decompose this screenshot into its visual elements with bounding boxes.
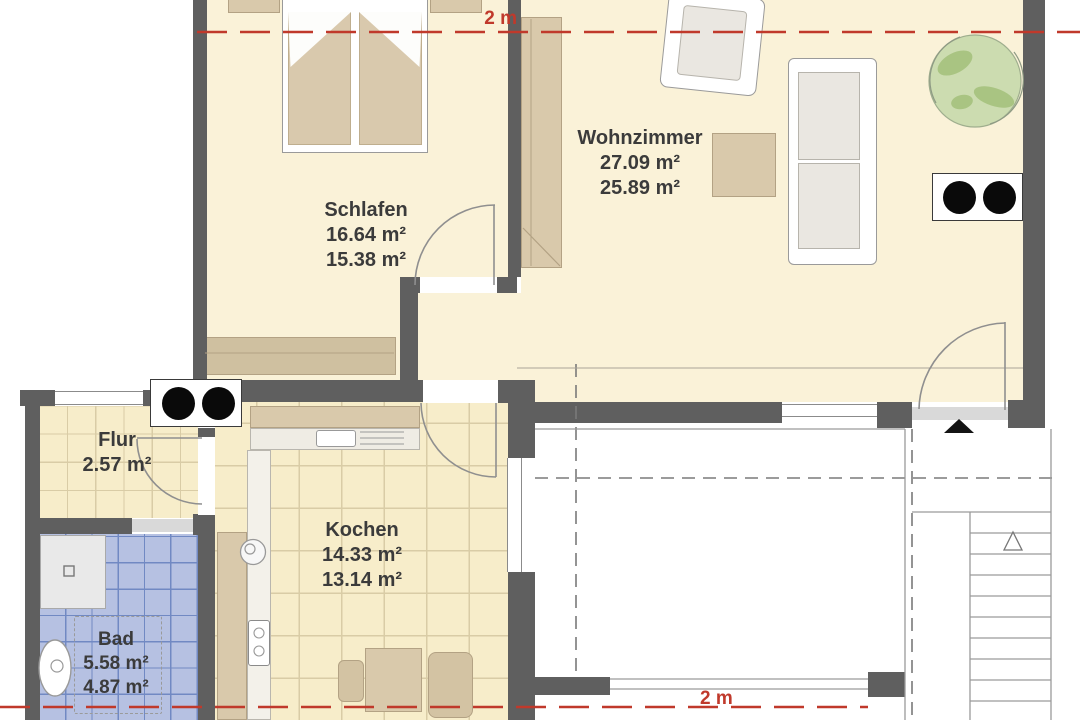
staircase [912,512,1051,720]
dining-chair-left [338,660,364,702]
stairs-up-arrow-icon [1004,532,1022,550]
burner-panel-flur [150,379,242,427]
room-name: Bad [70,628,162,652]
wall-living-right [1023,0,1045,404]
shower [40,535,106,609]
living-window [782,404,877,417]
wall-bad-kitchen [198,515,215,720]
room-area: 5.58 m² [70,652,162,676]
armchair-cushion [677,5,748,81]
wall-kitchen-balcony-lower [508,572,535,720]
schlafen-label: Schlafen 16.64 m² 15.38 m² [286,198,446,273]
wall-kitchen-door-block [498,380,535,403]
burner-panel-living [932,173,1023,221]
wall-nook-top-left [400,277,420,293]
room-name: Schlafen [286,198,446,223]
wall-bedroom-bottom [242,380,423,402]
dimension-label-top: 2 m [420,9,517,29]
room-name: Kochen [282,518,442,543]
room-name: Wohnzimmer [560,126,720,151]
kitchen-door-opening [423,380,498,403]
floor-plan: Schlafen 16.64 m² 15.38 m² Wohnzimmer 27… [0,0,1080,720]
sofa-cushion-bottom [798,163,860,249]
dresser [203,337,396,375]
kitchen-balcony-window [507,458,522,572]
bad-door-leaf [132,519,193,532]
burner-dot-icon [943,181,976,214]
flur-window [55,391,143,405]
sofa-cushion-top [798,72,860,160]
wall-living-bottom [535,402,782,423]
room-area: 15.38 m² [286,248,446,273]
wall-kitchen-balcony-upper [508,403,535,458]
bedroom-door-opening [420,277,497,293]
dimension-label-bottom: 2 m [700,689,733,709]
kitchen-oven [248,620,270,666]
room-area: 13.14 m² [282,568,442,593]
kochen-label: Kochen 14.33 m² 13.14 m² [282,518,442,593]
room-area: 25.89 m² [560,176,720,201]
kitchen-cabinets-left [217,532,247,720]
dining-table [365,648,422,712]
bad-label: Bad 5.58 m² 4.87 m² [70,628,162,700]
burner-dot-icon [983,181,1016,214]
wardrobe [521,17,562,268]
room-area: 14.33 m² [282,543,442,568]
room-area: 4.87 m² [70,676,162,700]
wall-balcony-left-block [533,677,610,695]
wall-nook-vertical [400,293,418,380]
room-area: 27.09 m² [560,151,720,176]
flur-label: Flur 2.57 m² [62,428,172,478]
balcony-railing [610,679,868,689]
burner-dot-icon [162,387,195,420]
burner-dot-icon [202,387,235,420]
wall-entrance-block [1008,400,1045,428]
wohnzimmer-label: Wohnzimmer 27.09 m² 25.89 m² [560,126,720,201]
wall-flur-kitchen-stub [198,428,215,437]
wall-bedroom-left [193,0,207,380]
kitchen-sink [316,430,356,447]
kitchen-counter-left [247,450,271,720]
nightstand-left [228,0,280,13]
wall-bad-top [25,518,132,534]
room-area: 16.64 m² [286,223,446,248]
wall-window-pier [877,402,912,428]
room-name: Flur [62,428,172,453]
kitchen-counter-upper [250,406,420,428]
wall-balcony-right-block [868,672,905,697]
wall-outer-left [25,390,40,720]
entrance-arrow-icon [944,419,974,433]
dining-chair-right [428,652,473,718]
entrance-threshold [912,407,1008,420]
wall-nook-top-right [497,277,517,293]
wall-bedroom-living [508,0,521,277]
room-area: 2.57 m² [62,453,172,478]
flur-door-opening [198,437,215,515]
coffee-table [712,133,776,197]
